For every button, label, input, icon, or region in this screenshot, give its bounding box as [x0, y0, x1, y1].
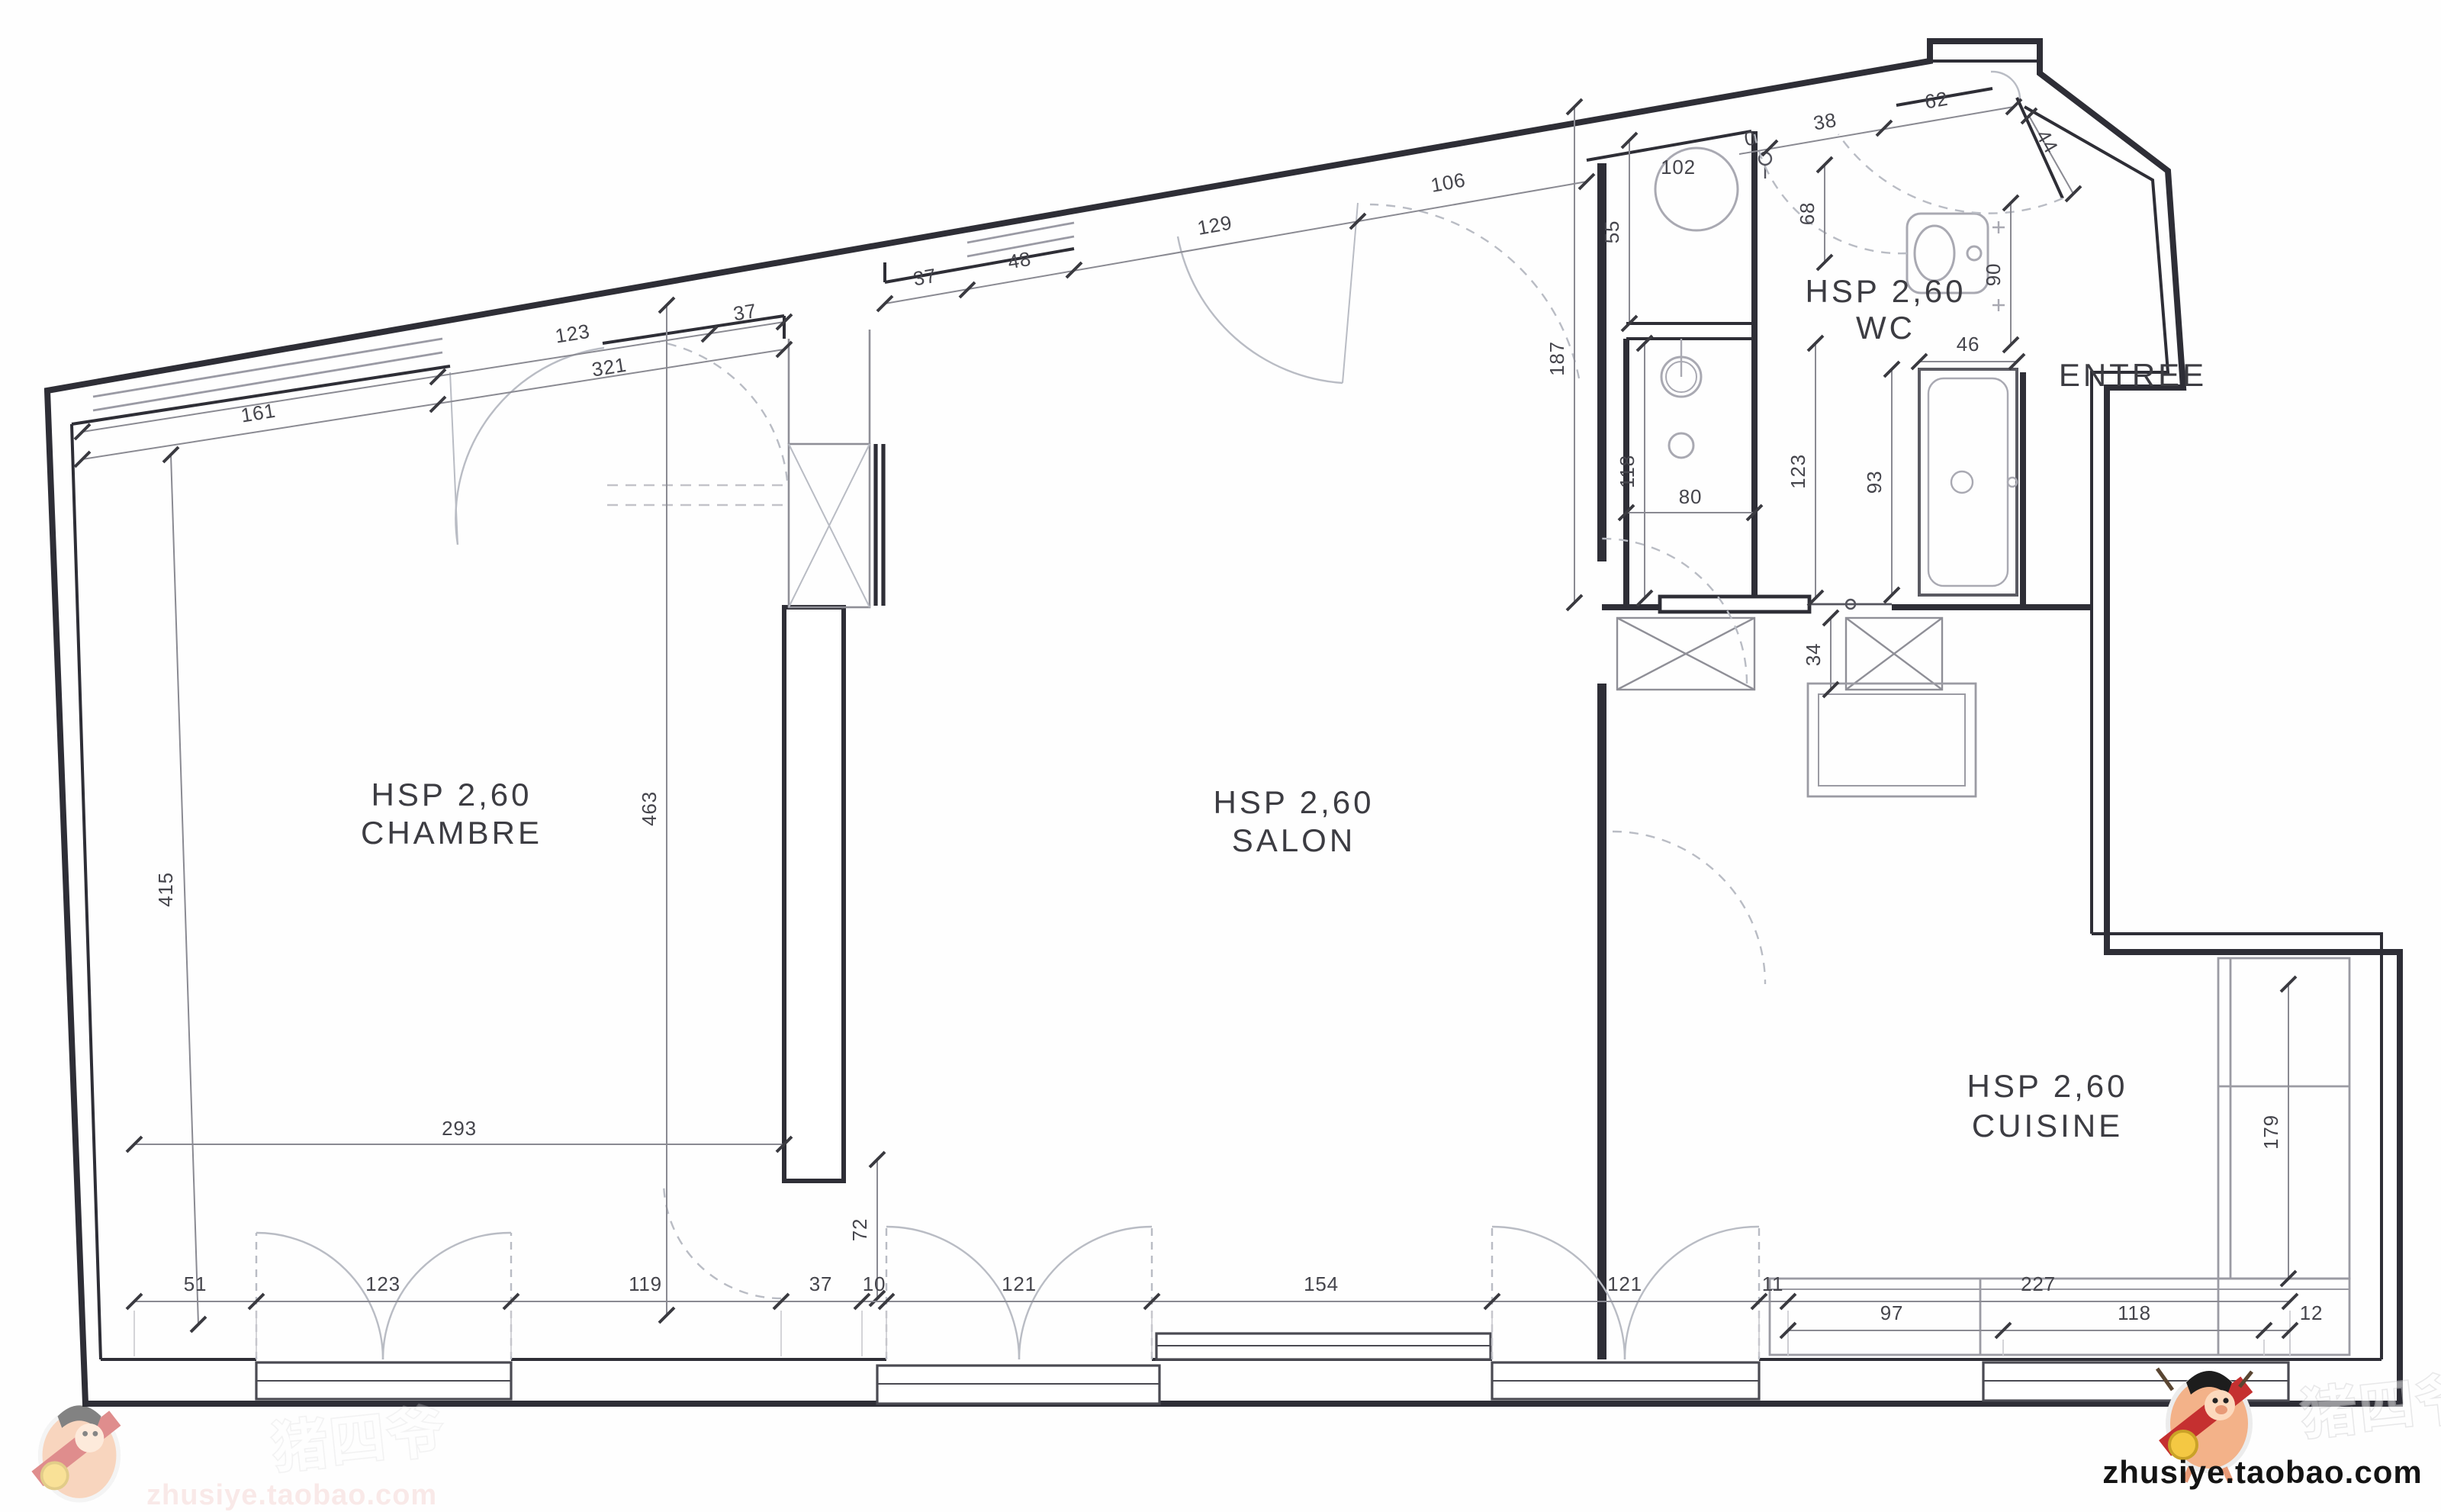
dimension-label: 34	[1802, 643, 1825, 667]
dimension-line-salon-top	[885, 182, 1587, 304]
brand-ghost-text: 猪四爷	[2298, 1368, 2441, 1446]
kitchen-counters	[1770, 684, 2349, 1355]
dimension-label: 80	[1679, 485, 1703, 508]
room-label-chambre: HSP 2,60	[371, 777, 532, 812]
floor-plan-page: 1613211233737481291060386244551026890187…	[0, 0, 2441, 1512]
dimension-tick	[877, 296, 892, 311]
dimension-label: 93	[1863, 471, 1886, 494]
dimension-tick	[2066, 186, 2081, 201]
dimension-label: 11	[1762, 1272, 1784, 1295]
shower-icon	[1919, 369, 2017, 595]
dimension-label: 118	[1616, 455, 1639, 488]
pig-mascot-icon-left	[31, 1405, 121, 1500]
dimension-label: 154	[1304, 1272, 1339, 1295]
dimension-label: 68	[1796, 202, 1819, 226]
dimension-label: 118	[2118, 1301, 2151, 1324]
dimension-label: 463	[638, 791, 661, 826]
dimension-label: 0	[1742, 126, 1758, 150]
dimension-tick	[75, 452, 90, 467]
dimension-label: 129	[1195, 211, 1233, 239]
dimension-label: 161	[240, 399, 278, 427]
room-label-wc: HSP 2,60	[1805, 273, 1966, 309]
dimension-label: 106	[1429, 168, 1467, 196]
dimension-label: 121	[1002, 1272, 1037, 1295]
dimension-tick	[75, 424, 90, 439]
inner-wall-lines	[72, 61, 2382, 1359]
dimension-label: 12	[2300, 1301, 2324, 1324]
window-sills	[256, 1333, 2288, 1404]
room-label-cuisine: CUISINE	[1972, 1108, 2123, 1144]
room-label-wc: WC	[1856, 310, 1915, 346]
door-swings	[256, 72, 2063, 1359]
dimension-label: 48	[1006, 247, 1033, 274]
dimension-label: 187	[1545, 341, 1568, 376]
dimension-label: 123	[365, 1272, 400, 1295]
dimension-label: 321	[590, 353, 629, 381]
dimension-label: 46	[1957, 333, 1980, 355]
dimension-label: 55	[1600, 220, 1623, 244]
window-glazing-top	[93, 223, 1074, 410]
dimension-label: 102	[1661, 156, 1696, 179]
dimension-label: 415	[154, 872, 177, 907]
room-label-entree: ENTREE	[2059, 357, 2207, 393]
room-label-cuisine: HSP 2,60	[1967, 1068, 2127, 1104]
dimension-label: 90	[1982, 263, 2005, 287]
room-label-salon: HSP 2,60	[1213, 784, 1374, 820]
dimension-label: 44	[2031, 126, 2063, 157]
dimension-label: 121	[1607, 1272, 1642, 1295]
bathroom-sliding-door	[1660, 597, 1892, 612]
watermark-left: 猪四爷 zhusiye.taobao.com	[31, 1401, 449, 1511]
dimension-label: 179	[2259, 1115, 2282, 1150]
dimension-label: 37	[809, 1272, 833, 1295]
dimensions-layer: 1613211233737481291060386244551026890187…	[75, 87, 2323, 1356]
brand-ghost-text-left: 猪四爷	[269, 1401, 449, 1480]
dimension-label: 293	[442, 1117, 477, 1140]
dimension-line-wc-top	[1739, 107, 2014, 154]
watermark-url-text: zhusiye.taobao.com	[2102, 1454, 2422, 1490]
dimension-label: 123	[554, 320, 592, 348]
dimension-line-chambre-top-a	[82, 322, 784, 432]
dimension-label: 123	[1787, 454, 1809, 489]
dimension-label: 119	[629, 1272, 662, 1295]
watermark-url-text-left: zhusiye.taobao.com	[146, 1479, 437, 1511]
outer-walls	[47, 41, 2400, 1404]
bathroom-cabinets	[1617, 618, 1942, 690]
dimension-label: 62	[1923, 87, 1950, 114]
dimension-label: 38	[1812, 108, 1838, 135]
dimension-label: 72	[848, 1218, 871, 1242]
floor-plan-canvas: 1613211233737481291060386244551026890187…	[0, 0, 2441, 1512]
dimension-tick	[1579, 174, 1594, 189]
dimension-tick	[1350, 214, 1365, 229]
dimension-label: 51	[184, 1272, 207, 1295]
room-label-salon: SALON	[1232, 822, 1356, 858]
dimension-label: 37	[912, 264, 938, 291]
dimension-label: 10	[863, 1272, 886, 1295]
room-labels-layer: HSP 2,60CHAMBREHSP 2,60SALONHSP 2,60WCHS…	[361, 273, 2207, 1144]
dimension-label: 97	[1880, 1301, 1904, 1324]
dimension-label: 227	[2021, 1272, 2056, 1295]
room-label-chambre: CHAMBRE	[361, 815, 542, 851]
dimension-label: 37	[732, 299, 758, 325]
dimension-tick	[2006, 99, 2021, 114]
